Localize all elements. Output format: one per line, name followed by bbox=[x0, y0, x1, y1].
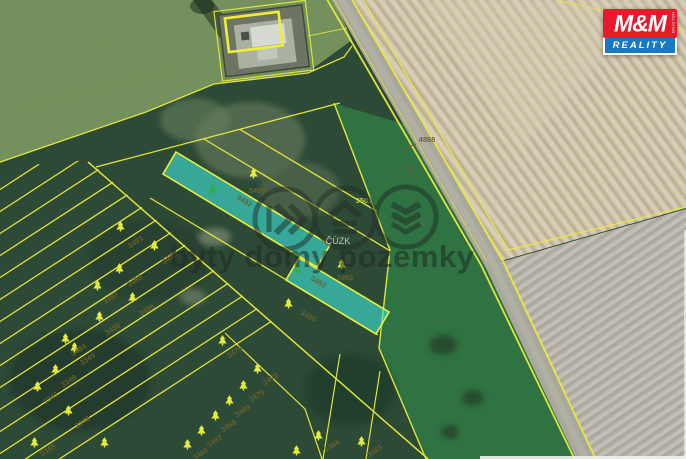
mm-reality-logo: M&M HOLDING REALITY bbox=[603, 9, 677, 55]
map-viewport[interactable]: 3489349234823483348035014868370349134903… bbox=[0, 0, 686, 459]
parcel-label: 3489 bbox=[249, 186, 266, 195]
parcel-label: 4868 bbox=[419, 135, 436, 144]
aerial-map-canvas: 3489349234823483348035014868370349134903… bbox=[0, 0, 686, 459]
parcel-label: 3482 bbox=[337, 273, 354, 282]
logo-holding-text: HOLDING bbox=[671, 12, 676, 34]
logo-mm-text: M&M bbox=[614, 8, 666, 37]
logo-top-box: M&M HOLDING bbox=[603, 9, 677, 38]
watermark-text: byty domy pozemky bbox=[170, 239, 475, 274]
logo-reality-text: REALITY bbox=[603, 36, 677, 55]
